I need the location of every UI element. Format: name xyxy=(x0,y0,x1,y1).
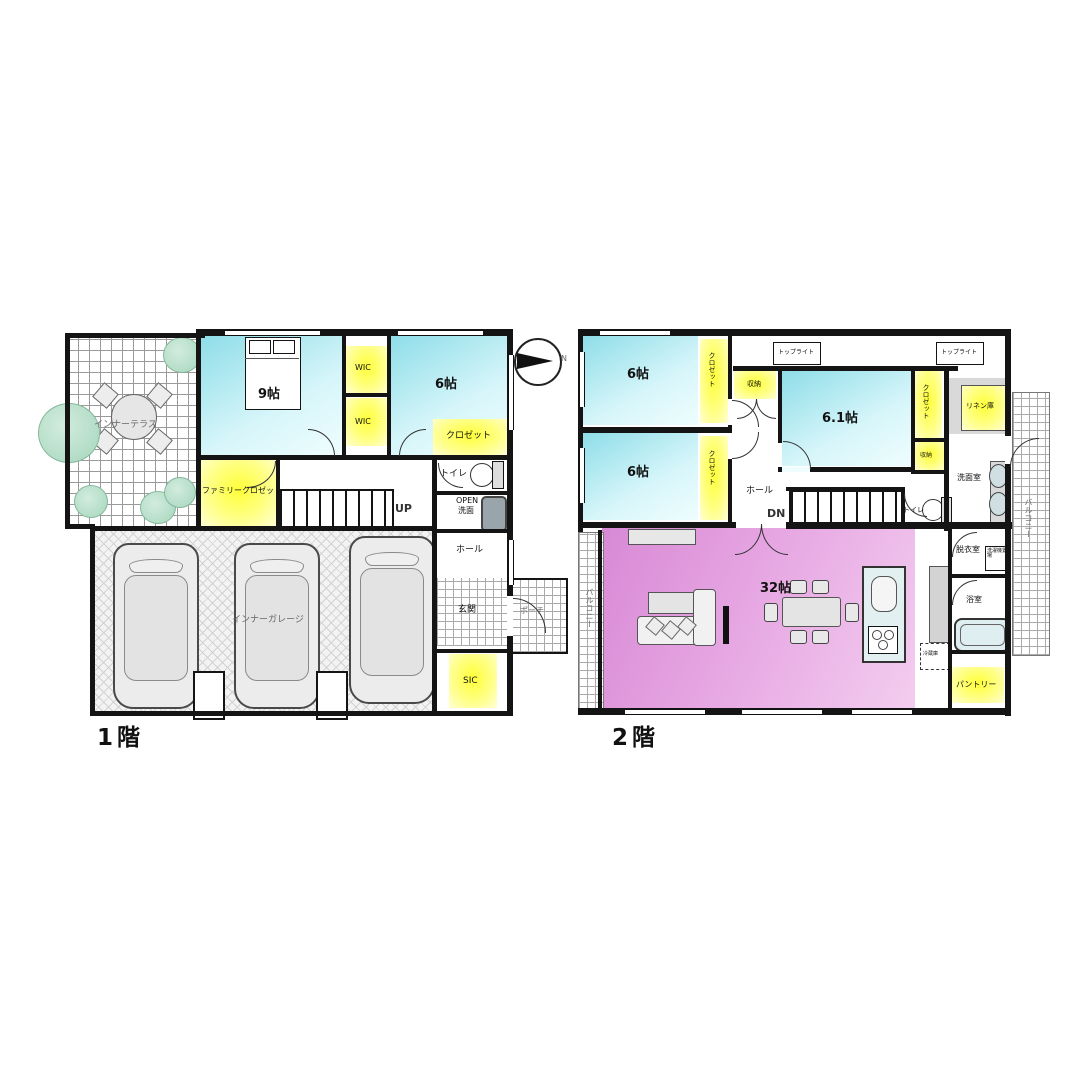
wall xyxy=(728,335,732,525)
compass-north-label: N xyxy=(561,355,567,363)
window xyxy=(398,330,483,336)
toilet-label: トイレ xyxy=(440,470,467,479)
hall-label: ホール xyxy=(746,487,773,496)
room6-lower-label: 6帖 xyxy=(627,466,649,479)
wall xyxy=(65,333,70,529)
kitchen-back-counter xyxy=(929,566,949,643)
car-roof xyxy=(124,575,188,681)
storage-mid-label: 収納 xyxy=(747,381,761,388)
window xyxy=(852,709,912,715)
car-roof xyxy=(245,575,309,681)
closet-right-label: クロゼット xyxy=(922,384,929,419)
window xyxy=(508,540,514,585)
car xyxy=(113,543,199,709)
dining-chair xyxy=(812,580,829,594)
floor2-title: 2階 xyxy=(612,727,659,750)
car xyxy=(349,536,435,704)
tree xyxy=(74,485,108,518)
wall xyxy=(432,491,508,495)
compass-needle xyxy=(517,353,553,369)
bed-fold-line xyxy=(245,358,299,359)
burner xyxy=(872,630,882,640)
tv-board xyxy=(628,529,696,545)
burner xyxy=(884,630,894,640)
wall xyxy=(344,393,390,397)
wall xyxy=(90,526,437,531)
terrace-label: インナーテラス xyxy=(94,421,157,430)
closet-label: クロゼット xyxy=(446,432,491,441)
window xyxy=(742,709,822,715)
dining-chair xyxy=(764,603,778,622)
floor-plan-canvas: インナーテラス 9帖 WIC WIC 6帖 クロゼット ファミリークロゼット ト… xyxy=(0,0,1080,1080)
fridge-label: 冷蔵庫 xyxy=(923,652,950,657)
bathtub-inner xyxy=(960,624,1005,646)
open-wash-label-1: OPEN xyxy=(456,497,478,505)
wall xyxy=(196,455,511,460)
stairs-down-label: DN xyxy=(767,508,785,519)
wall xyxy=(733,366,958,371)
dining-chair xyxy=(812,630,829,644)
toilet-bowl-icon xyxy=(470,463,494,487)
balcony-right-label: バルコニー xyxy=(1024,498,1032,538)
sic-label: SIC xyxy=(463,677,478,686)
toilet-label: トイレ xyxy=(903,507,924,514)
stairs-up-label: UP xyxy=(395,503,412,514)
dining-chair xyxy=(790,580,807,594)
wall xyxy=(948,574,1008,578)
wic-upper-label: WIC xyxy=(355,364,371,372)
dining-chair xyxy=(845,603,859,622)
north-arrow-icon xyxy=(514,338,562,386)
wall xyxy=(196,333,201,529)
terrace-table xyxy=(111,394,157,440)
tree xyxy=(164,477,196,508)
room6-upper-label: 6帖 xyxy=(627,368,649,381)
wic-lower-label: WIC xyxy=(355,418,371,426)
wall xyxy=(598,530,602,710)
dressing-label: 脱衣室 xyxy=(956,546,980,554)
dining-chair xyxy=(790,630,807,644)
family-closet-label: ファミリークロゼット xyxy=(202,487,282,495)
coffee-table xyxy=(648,592,694,614)
stairs-up xyxy=(278,489,394,529)
window xyxy=(625,709,705,715)
toplight-right-label: トップライト xyxy=(941,350,977,356)
bathtub-icon xyxy=(954,618,1011,652)
closet-lower-label: クロゼット xyxy=(708,450,715,485)
wall xyxy=(786,487,905,491)
car-roof xyxy=(360,568,424,676)
window xyxy=(600,330,670,336)
bed-pillow xyxy=(249,340,271,354)
window xyxy=(508,355,514,430)
room61-label: 6.1帖 xyxy=(822,412,858,425)
stove xyxy=(868,626,898,654)
fridge-box: 冷蔵庫 xyxy=(920,643,950,670)
sofa-arm xyxy=(693,589,716,646)
room6-size-label: 6帖 xyxy=(435,378,457,391)
wall xyxy=(90,524,95,716)
dining-table xyxy=(782,597,841,627)
toplight-left-label: トップライト xyxy=(778,350,814,356)
car xyxy=(234,543,320,709)
door-arc xyxy=(732,432,759,459)
door-arc xyxy=(756,399,776,419)
hall-label: ホール xyxy=(456,546,483,555)
kitchen-sink xyxy=(871,576,897,612)
wall xyxy=(944,366,949,531)
washbasin-icon xyxy=(481,496,507,532)
wall xyxy=(432,529,508,533)
bedroom-size-label: 9帖 xyxy=(258,388,280,401)
wall xyxy=(65,333,205,338)
wall xyxy=(948,650,1008,654)
burner xyxy=(878,640,888,650)
garage-label: インナーガレージ xyxy=(232,616,304,625)
balcony-left-label: バルコニー xyxy=(585,588,593,628)
wall xyxy=(911,470,948,474)
wall xyxy=(437,649,507,653)
storage-small-label: 収納 xyxy=(920,453,932,459)
ldk-size-label: 32帖 xyxy=(760,582,791,595)
floor1-title: 1階 xyxy=(97,727,144,750)
wall xyxy=(432,459,437,716)
wall xyxy=(786,522,1012,529)
wall xyxy=(578,427,730,433)
car-windshield xyxy=(129,559,183,573)
window xyxy=(579,352,585,407)
pantry-label: パントリー xyxy=(956,681,996,689)
tv-panel xyxy=(723,606,729,644)
toilet-tank-icon xyxy=(492,461,504,489)
car-windshield xyxy=(365,552,419,566)
bed-pillow xyxy=(273,340,295,354)
closet-upper-label: クロゼット xyxy=(708,352,715,387)
wall xyxy=(911,366,915,472)
porch-label: ポーチ xyxy=(520,607,544,615)
window xyxy=(225,330,320,336)
wall xyxy=(911,438,948,442)
entrance-label: 玄関 xyxy=(458,606,476,615)
wall xyxy=(778,366,782,443)
wall xyxy=(90,711,510,716)
linen-label: リネン庫 xyxy=(966,403,994,410)
open-wash-label-2: 洗面 xyxy=(458,507,474,515)
window xyxy=(579,448,585,503)
washroom-label: 洗面室 xyxy=(957,474,981,482)
bath-label: 浴室 xyxy=(966,596,982,604)
car-windshield xyxy=(250,559,304,573)
wall xyxy=(578,522,736,528)
